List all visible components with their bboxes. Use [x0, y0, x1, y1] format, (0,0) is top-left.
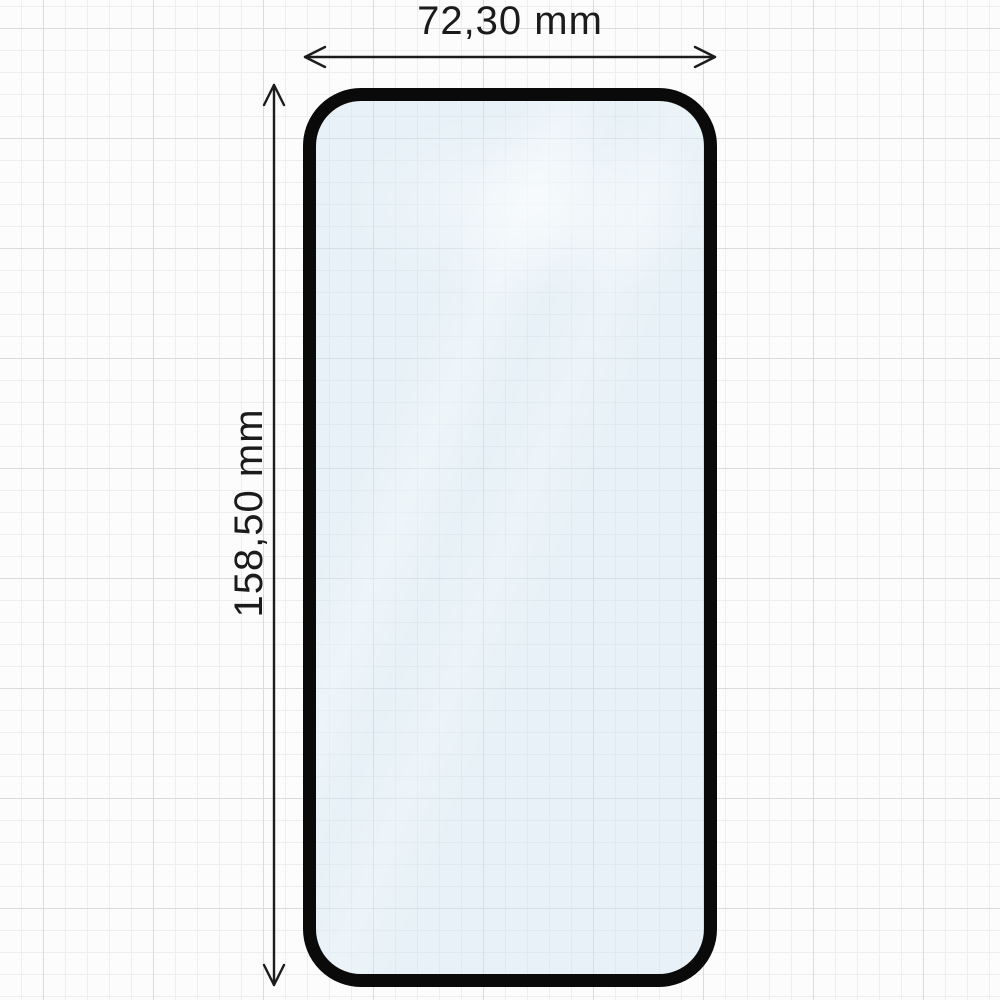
screen-protector-glass: [303, 88, 717, 987]
glass-glare-reflection: [316, 101, 704, 974]
glass-surface: [316, 101, 704, 974]
width-dimension-label: 72,30 mm: [417, 0, 603, 44]
dimension-diagram: 72,30 mm 158,50 mm: [0, 0, 1000, 1000]
height-dimension-arrow: [259, 79, 289, 991]
width-dimension-arrow: [300, 42, 720, 72]
